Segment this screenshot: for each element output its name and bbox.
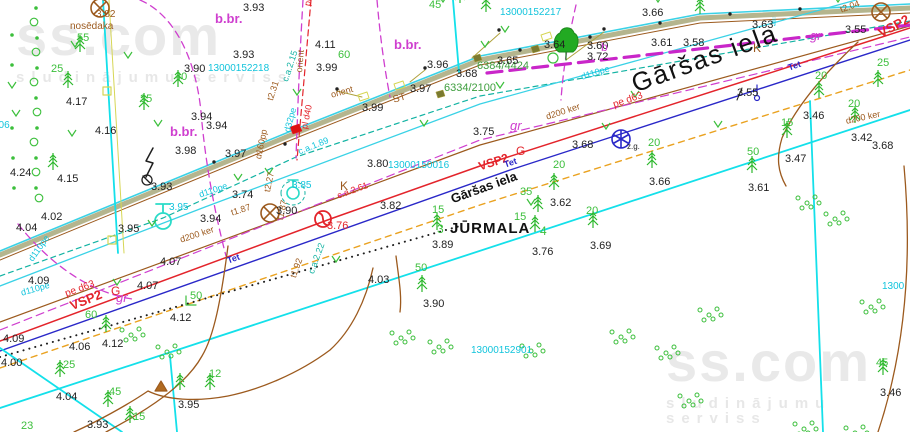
map-label: 4 [540,225,547,237]
map-label: 3.65 [497,56,518,67]
map-label: 3.46 [803,111,824,122]
map-label: 3.93 [151,182,172,193]
map-label: 4.16 [95,126,116,137]
map-label: 3.95 [169,203,188,213]
vegetation-circle [390,331,394,335]
vegetation-circle [445,339,449,343]
grass-icon [496,82,504,88]
shrub-icon [548,53,558,63]
map-label: 20 [848,99,860,110]
parcel-number: 1300 [882,282,904,292]
tree-icon [48,153,58,170]
vegetation-circle [659,356,663,360]
map-label: b.br. [394,38,421,51]
grass-icon [332,256,340,262]
vegetation-dot [35,66,39,70]
map-label: 3.47 [785,154,806,165]
map-label: 3.68 [572,140,593,151]
map-label: 50 [190,291,202,302]
bbr-arc-dashed [377,0,390,97]
vegetation-circle [678,394,682,398]
map-label: 3.55 [845,25,866,36]
vegetation-circle [802,427,806,431]
tree-icon [101,315,111,332]
grass-icon [834,0,842,2]
vegetation-circle [869,305,873,309]
map-label: 3.64 [544,40,565,51]
map-label: 15 [781,118,793,129]
map-label: 4.24 [10,168,31,179]
vegetation-dot [34,186,38,190]
vegetation-dot [35,126,39,130]
lamp-icon [146,148,153,177]
map-lines-layer [0,0,910,432]
vegetation-circle [32,48,40,56]
map-label: 3.76 [327,221,348,232]
map-label: 3.46 [880,388,901,399]
map-label: 25 [877,58,889,69]
vegetation-circle [715,307,719,311]
map-label: 3.68 [872,141,893,152]
map-label: gr [810,29,822,42]
tree-icon [695,0,705,14]
vegetation-circle [719,313,723,317]
map-label: 35 [520,187,532,198]
parcel-boundary [810,101,823,432]
parcel-boundary [453,0,459,72]
grass-icon [293,89,301,95]
map-label: 4.15 [57,174,78,185]
grass-icon [8,82,16,88]
point-dot [518,48,521,51]
grass-icon [654,0,662,2]
vegetation-circle [156,345,160,349]
vegetation-circle [682,404,686,408]
map-label: 3.94 [206,121,227,132]
map-label: 35 [140,94,152,105]
map-label: ij [772,17,776,26]
parcel-boundary [170,356,177,432]
map-label: 15 [133,412,145,423]
vegetation-circle [610,330,614,334]
tree-icon [455,0,465,3]
vegetation-circle [676,351,680,355]
vegetation-dot [10,63,14,67]
map-label: 206 [0,121,10,131]
vegetation-circle [861,425,865,429]
map-label: 45 [429,0,441,11]
map-label: 3.85 [292,181,311,191]
map-label: 60 [85,310,97,321]
parcel-number: 13000152218 [208,64,269,74]
map-label: 15 [514,212,526,223]
point-dot [658,21,661,24]
vegetation-circle [537,343,541,347]
parcel-number: 13000152901 [471,346,532,356]
map-label: G [516,145,525,157]
map-label: 3.97 [410,84,431,95]
vegetation-circle [860,300,864,304]
map-label: 3.90 [423,299,444,310]
vegetation-circle [824,212,828,216]
vegetation-dot [35,36,39,40]
map-label: 4.07 [137,281,158,292]
tree-icon [814,81,824,98]
vegetation-circle [707,313,711,317]
vegetation-circle [844,426,848,430]
map-label: 6334/2100 [444,83,496,94]
map-label: 3.68 [456,69,477,80]
vegetation-circle [30,138,38,146]
vegetation-circle [33,108,41,116]
map-label: 15 [432,205,444,216]
tree-icon [530,215,540,232]
map-label: 3.61 [651,38,672,49]
vegetation-circle [129,333,133,337]
vegetation-circle [793,422,797,426]
tree-icon [873,70,883,87]
map-label: 25 [51,64,63,75]
map-label: 3.93 [243,3,264,14]
vegetation-circle [687,399,691,403]
map-label: 3.93 [87,420,108,431]
vegetation-circle [173,344,177,348]
map-label: 20 [648,138,660,149]
vegetation-circle [120,328,124,332]
map-label: 3.96 [427,60,448,71]
map-label: 3.82 [380,201,401,212]
vegetation-circle [699,399,703,403]
map-label: gr [510,119,522,132]
vegetation-circle [881,305,885,309]
vegetation-circle [403,340,407,344]
map-label: 25 [63,360,75,371]
vegetation-circle [702,318,706,322]
map-label: 20 [553,160,565,171]
parcel-number: 13000152217 [500,8,561,18]
tree-icon [63,71,73,88]
grass-icon [124,52,132,58]
vegetation-circle [877,299,881,303]
map-label: G [111,285,120,297]
map-label: 3.55 [737,88,758,99]
map-label: z.g. [627,143,640,151]
map-label: 3.61 [748,183,769,194]
vegetation-circle [805,201,809,205]
ditch-curve [396,256,401,312]
grass-icon [420,120,428,126]
map-label: 3.89 [432,240,453,251]
point-dot [728,12,731,15]
vegetation-circle [623,339,627,343]
vegetation-circle [428,340,432,344]
tree-icon [747,156,757,173]
pl-d40-dashed [297,0,311,160]
map-label: 3.75 [473,127,494,138]
vegetation-circle [833,217,837,221]
tree-icon [417,275,427,292]
vegetation-circle [137,327,141,331]
map-label: 3.95 [118,224,139,235]
vegetation-circle [809,205,813,209]
map-label: 45 [109,387,121,398]
map-label: b [601,41,608,53]
map-label: 4.07 [160,257,181,268]
vegetation-circle [432,350,436,354]
map-label: 3.66 [649,177,670,188]
map-label: 3 [437,223,444,235]
map-label: 50 [415,263,427,274]
vegetation-circle [841,211,845,215]
grass-icon [154,120,162,126]
vegetation-circle [631,335,635,339]
vegetation-circle [619,335,623,339]
map-label: 4.04 [16,223,37,234]
vegetation-circle [814,427,818,431]
map-label: 3.99 [362,103,383,114]
vegetation-circle [828,222,832,226]
map-label: 4.12 [102,339,123,350]
point-dot [798,7,801,10]
vegetation-circle [664,351,668,355]
vegetation-circle [695,393,699,397]
vegetation-circle [441,349,445,353]
map-label: 3.95 [178,400,199,411]
vegetation-dot [10,126,14,130]
map-label: b.br. [170,125,197,138]
vegetation-circle [141,333,145,337]
vegetation-circle [533,353,537,357]
vegetation-circle [873,309,877,313]
vegetation-circle [32,168,40,176]
orange-line-dashed [0,70,910,368]
grass-icon [527,199,535,205]
point-dot [602,27,605,30]
vegetation-circle [394,341,398,345]
tree-icon [647,151,657,168]
point-dot [497,28,500,31]
pole-square [103,87,111,95]
map-label: 4.02 [41,212,62,223]
map-label: b.br. [215,12,242,25]
map-label: 3.99 [316,63,337,74]
map-label: 12 [209,369,221,380]
map-label: 4.09 [3,334,24,345]
map-label: 3.82 [96,10,115,20]
grass-icon [12,110,20,116]
vegetation-circle [810,421,814,425]
vegetation-circle [837,221,841,225]
vegetation-dot [34,96,38,100]
grass-icon [234,174,242,180]
vegetation-circle [627,329,631,333]
point-dot [212,160,215,163]
map-label: 4.00 [1,358,22,369]
vegetation-circle [437,345,441,349]
vegetation-circle [845,217,849,221]
vegetation-circle [35,194,43,202]
vegetation-circle [124,338,128,342]
tree-icon [481,0,491,12]
vegetation-circle [133,337,137,341]
grass-icon [68,130,76,136]
vegetation-circle [30,78,38,86]
vegetation-circle [800,206,804,210]
vegetation-circle [711,317,715,321]
map-label: 3.98 [175,146,196,157]
survey-triangle-icon [155,381,167,391]
map-label: 3.74 [232,190,253,201]
map-label: 4.03 [368,275,389,286]
vegetation-circle [30,18,38,26]
vegetation-circle [411,336,415,340]
vegetation-dot [34,6,38,10]
map-label: 50 [747,147,759,158]
vegetation-circle [449,345,453,349]
vegetation-dot [11,156,15,160]
vegetation-circle [668,355,672,359]
map-label: 20 [586,206,598,217]
map-label: 4.04 [56,392,77,403]
vegetation-circle [672,345,676,349]
map-label: 3.69 [590,241,611,252]
map-label: 55 [77,33,89,44]
map-label: 23 [21,421,33,432]
vegetation-circle [177,350,181,354]
tree-icon [549,173,559,190]
map-label: 3.62 [550,198,571,209]
map-label: 20 [815,71,827,82]
map-label: 60 [338,50,350,61]
map-label: 4.12 [170,313,191,324]
map-label: 3.93 [233,50,254,61]
grass-icon [714,121,722,127]
map-canvas[interactable]: ss.com sludinājumu serviss ss.com sludin… [0,0,910,432]
map-label: 4.11 [315,40,336,51]
map-label: 3.76 [532,247,553,258]
vegetation-circle [817,201,821,205]
vegetation-dot [34,156,38,160]
grass-icon [501,26,509,32]
parcel-number: 13000150016 [388,161,449,171]
tree-icon [533,195,543,212]
vegetation-dot [10,33,14,37]
map-label: 45 [876,358,888,369]
vegetation-circle [655,346,659,350]
map-label: 4.06 [69,342,90,353]
map-label: 3.97 [225,149,246,160]
map-label: 3.90 [276,206,297,217]
map-label: 4.17 [66,97,87,108]
city-name: JŪRMALA [450,221,530,236]
map-label: 3.66 [642,8,663,19]
vegetation-circle [698,308,702,312]
map-label: 3.80 [367,159,388,170]
service-line-dashed [0,21,910,276]
vegetation-circle [541,349,545,353]
vegetation-dot [12,186,16,190]
vegetation-circle [399,336,403,340]
vegetation-circle [796,196,800,200]
point-dot [283,142,286,145]
point-dot [588,35,591,38]
map-label: 3.90 [184,64,205,75]
map-label: 3.42 [851,133,872,144]
vegetation-circle [614,340,618,344]
vegetation-circle [691,403,695,407]
vegetation-circle [407,330,411,334]
map-label: nosēdaka [70,22,113,32]
tree-icon [175,373,185,390]
vegetation-circle [864,310,868,314]
